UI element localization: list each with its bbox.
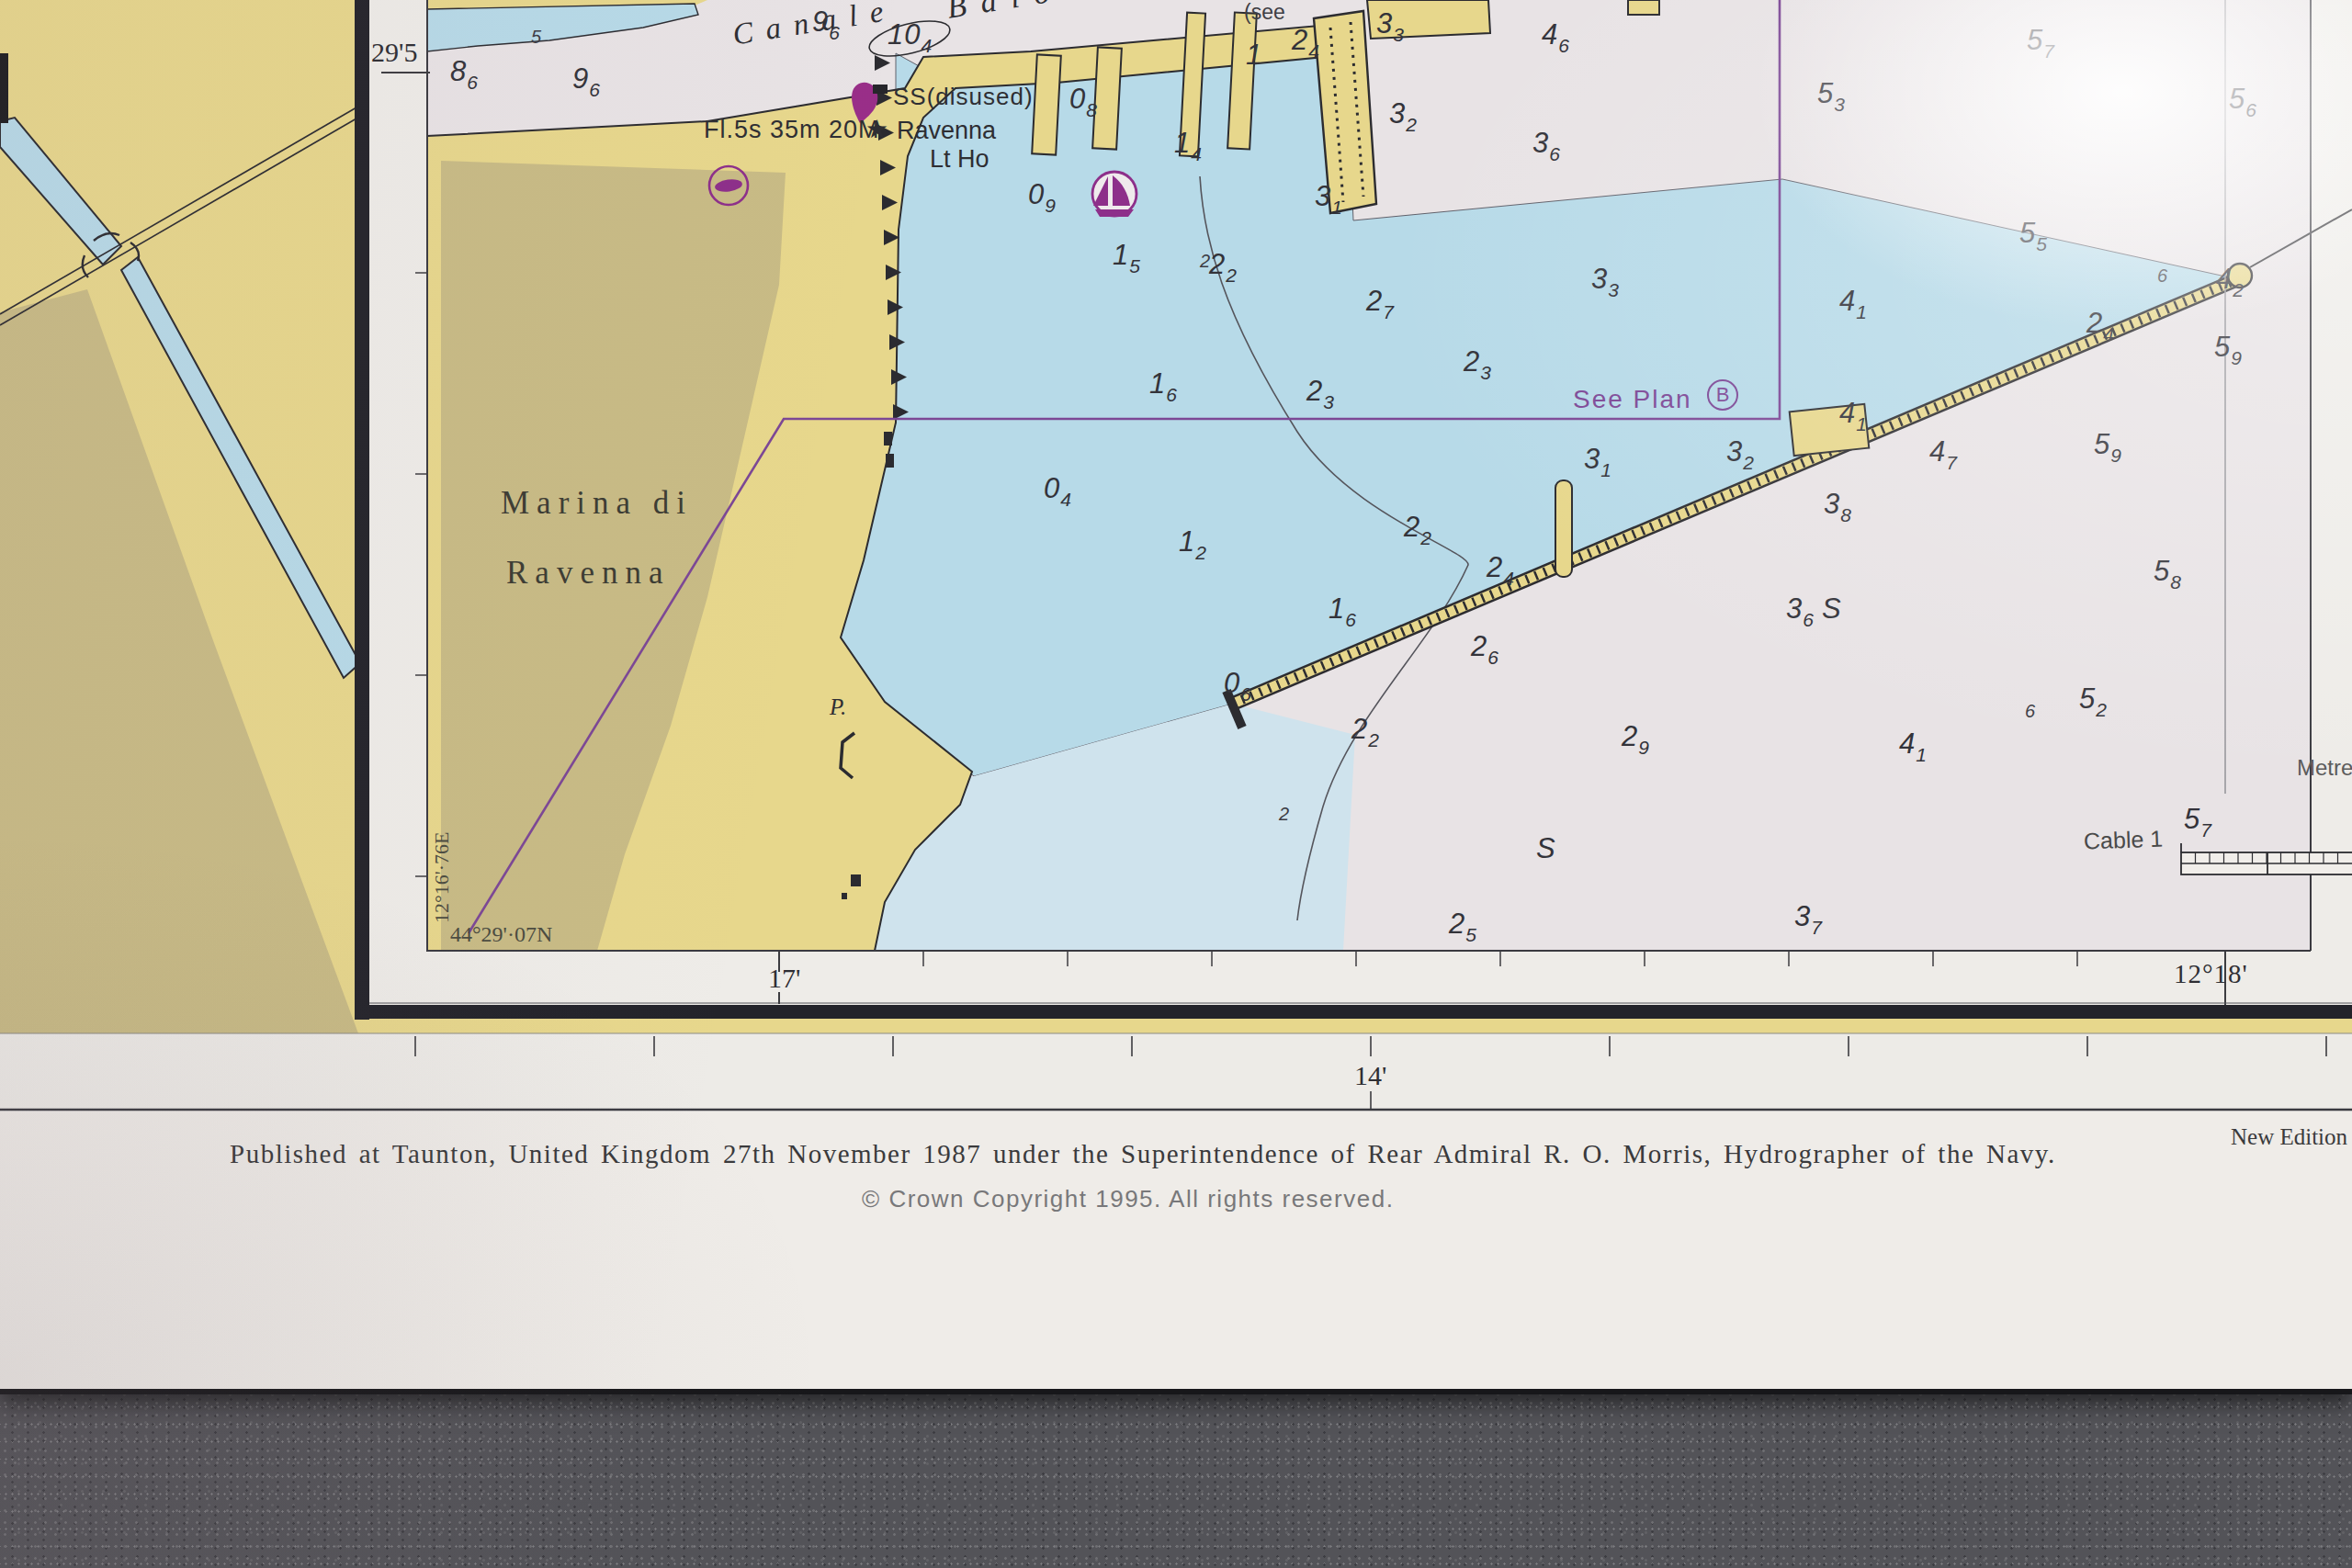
light-characteristic-label: Fl.5s 35m 20M — [704, 116, 880, 144]
sounding: 23 — [1464, 347, 1491, 382]
latitude-corner-label: 44°29'·07N — [450, 922, 552, 947]
plan-b-badge: B — [1707, 379, 1738, 411]
sounding: 33 — [1591, 265, 1619, 299]
sounding: 23 — [1306, 377, 1334, 412]
contour-label: 2 — [1279, 805, 1289, 823]
copyright-note: © Crown Copyright 1995. All rights reser… — [862, 1185, 1394, 1213]
contour-label: 6 — [2025, 702, 2035, 720]
chart-paper: 29'5 Canale Baiona (see SS(disused) Fl.5… — [0, 0, 2352, 1394]
contour-label: 5 — [531, 28, 541, 46]
sounding: 06 — [1224, 669, 1251, 704]
sounding: 96 — [812, 7, 840, 42]
sounding: 52 — [2079, 684, 2107, 719]
lighthouse-name-label: Ravenna — [897, 117, 996, 145]
marina-symbol-icon — [1092, 172, 1136, 217]
sounding: 41 — [1839, 287, 1867, 321]
new-edition-note: New Edition — [2231, 1124, 2347, 1150]
sounding: 104 — [888, 20, 932, 55]
sounding: 15 — [1113, 241, 1140, 276]
latitude-14-label: 14' — [1354, 1060, 1386, 1091]
lighthouse-star-icon: ★ — [865, 114, 888, 144]
nautical-chart-photo: 29'5 Canale Baiona (see SS(disused) Fl.5… — [0, 0, 2352, 1568]
sounding: 08 — [1069, 85, 1097, 119]
sounding: 56 — [2229, 85, 2256, 119]
sounding: S — [1536, 834, 1556, 863]
sounding: 53 — [1817, 79, 1845, 114]
sounding: 41 — [1899, 729, 1927, 764]
sounding: 31 — [1315, 182, 1342, 217]
see-note-label: (see — [1244, 0, 1285, 25]
sounding: 22 — [1404, 513, 1431, 547]
see-plan-label: See Plan — [1573, 385, 1692, 414]
mainchart-graduation-band — [0, 1033, 2352, 1110]
sounding: 26 — [1471, 632, 1498, 667]
sounding: 22 — [1209, 250, 1237, 285]
sounding: 14 — [1174, 129, 1202, 164]
signal-station-label: SS(disused) — [893, 83, 1034, 111]
sounding: 32 — [1726, 437, 1754, 472]
sounding: 32 — [1389, 99, 1417, 134]
longitude-18-label: 12°18' — [2174, 959, 2248, 989]
sounding: 96 — [572, 64, 600, 99]
contour-label: 6 — [2157, 266, 2167, 285]
cable-label: Cable 1 — [2084, 826, 2164, 855]
p-label: P. — [830, 694, 846, 720]
sounding: 09 — [1028, 180, 1056, 215]
sounding: 24 — [2086, 309, 2114, 344]
sounding: 57 — [2027, 26, 2054, 61]
wall-dash — [884, 432, 892, 446]
plan-border-bottom — [355, 1005, 2352, 1019]
sounding: 37 — [1794, 902, 1822, 937]
inner-jetty — [1555, 480, 1572, 577]
lighthouse-ltho-label: Lt Ho — [930, 145, 989, 174]
sounding: 31 — [1584, 445, 1611, 479]
sounding: 59 — [2094, 430, 2121, 465]
sounding: 42 — [2216, 265, 2244, 299]
wall-dash — [886, 454, 894, 468]
sounding: 24 — [1487, 553, 1514, 588]
sounding: 22 — [1351, 715, 1379, 750]
sounding: 58 — [2154, 557, 2181, 592]
metres-label: Metres — [2297, 755, 2352, 781]
marina-di-ravenna-label: Marina di — [501, 485, 693, 522]
sounding: 38 — [1824, 490, 1851, 525]
contour-label: 2 — [1200, 252, 1210, 270]
sounding: 29 — [1622, 722, 1649, 757]
sounding: 25 — [1449, 909, 1476, 944]
sounding: 55 — [2019, 219, 2047, 254]
sounding: 16 — [1149, 369, 1177, 404]
longitude-17-label: 17' — [768, 963, 800, 994]
building-dot — [842, 893, 847, 899]
latitude-label-29-5: 29'5 — [371, 37, 417, 68]
photo-edge-shadow — [0, 53, 8, 123]
sounding: 1 — [1246, 40, 1262, 69]
sounding: 46 — [1542, 20, 1569, 55]
marina-di-ravenna-label-2: Ravenna — [506, 555, 670, 592]
sounding: 16 — [1329, 594, 1356, 629]
sounding: 36S — [1786, 594, 1842, 629]
sounding: 86 — [450, 57, 478, 92]
sounding: 04 — [1044, 474, 1071, 509]
signal-station-mark — [873, 85, 888, 94]
sounding: 24 — [1292, 26, 1319, 61]
chart-artwork — [0, 0, 2352, 1389]
sounding: 33 — [1376, 9, 1404, 44]
plan-border-left — [355, 0, 369, 1020]
publication-note: Published at Taunton, United Kingdom 27t… — [230, 1139, 2056, 1169]
sounding: 12 — [1179, 527, 1206, 562]
longitude-corner-label: 12°16'·76E — [430, 831, 454, 923]
sounding: 59 — [2214, 333, 2242, 367]
building-dot — [851, 874, 861, 886]
sounding: 27 — [1366, 287, 1394, 321]
sounding: 57 — [2184, 805, 2211, 840]
sounding: 36 — [1532, 129, 1560, 164]
sounding: 47 — [1929, 437, 1957, 472]
sounding: 41 — [1839, 399, 1867, 434]
